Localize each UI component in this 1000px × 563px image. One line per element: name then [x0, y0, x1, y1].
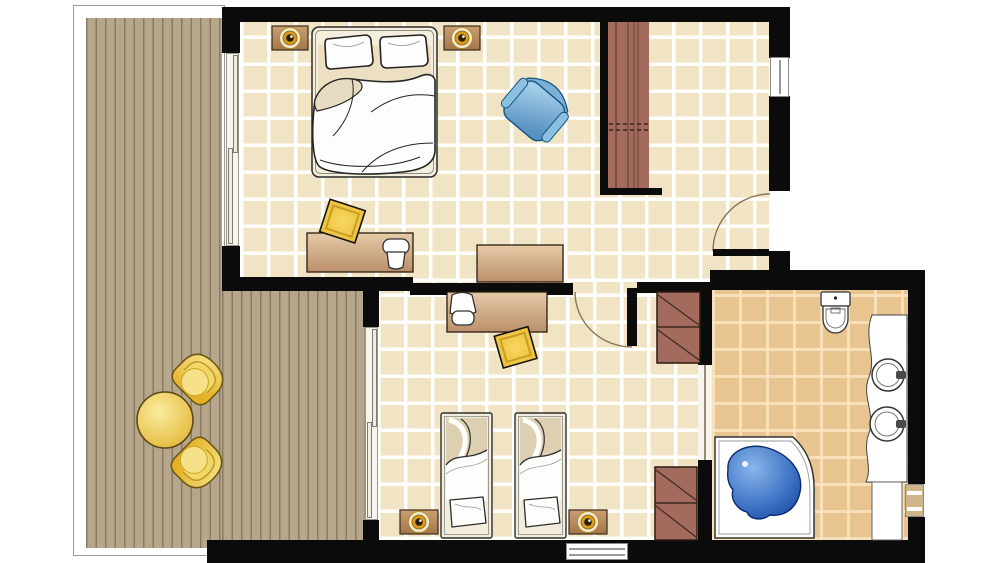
toilet	[821, 292, 850, 333]
console-table	[477, 245, 563, 282]
second-rug	[494, 327, 537, 368]
table-lamp	[578, 512, 599, 533]
entry-door[interactable]	[713, 194, 770, 256]
wardrobe-closet	[608, 22, 649, 188]
pillow	[380, 35, 428, 68]
patio-table	[137, 392, 193, 448]
twin-bed	[441, 413, 492, 538]
shelf-unit-lower	[655, 467, 697, 540]
duvet	[313, 75, 435, 174]
second-desk-chair	[450, 293, 476, 326]
double-bed	[312, 27, 437, 177]
second-bedroom-door-leaf	[627, 288, 637, 346]
pillow	[325, 35, 373, 69]
blue-armchair	[496, 66, 579, 148]
vanity-counter	[866, 315, 907, 540]
entry-door-leaf	[713, 249, 769, 256]
table-lamp	[280, 28, 301, 49]
second-bedroom-door[interactable]	[575, 288, 637, 347]
table-lamp	[452, 28, 473, 49]
corner-bathtub	[715, 437, 814, 538]
furniture-layer	[0, 0, 1000, 563]
floor-plan	[0, 0, 1000, 563]
shelf-unit-upper	[657, 292, 700, 363]
table-lamp	[409, 512, 430, 533]
